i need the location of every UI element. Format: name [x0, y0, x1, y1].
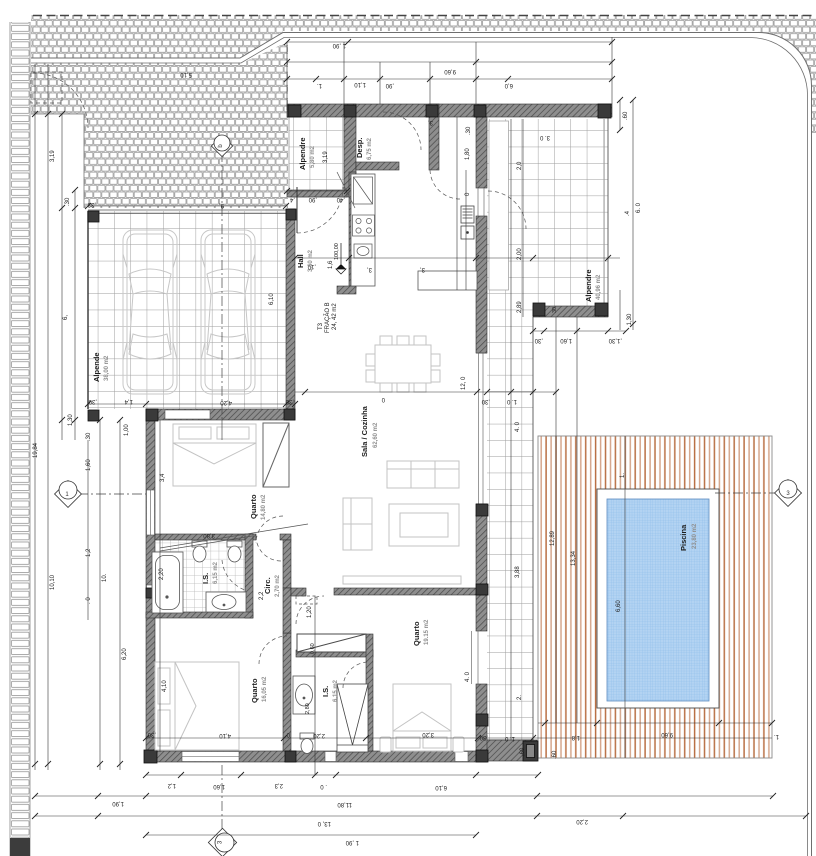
svg-text:6,15 m2: 6,15 m2: [333, 679, 339, 702]
svg-text:13,34: 13,34: [571, 550, 577, 566]
svg-text:6,20: 6,20: [122, 648, 128, 660]
svg-text:Circ.: Circ.: [263, 577, 272, 594]
svg-text:3,: 3,: [428, 119, 433, 125]
svg-text:. 0: . 0: [320, 783, 327, 789]
svg-text:100,00: 100,00: [334, 243, 340, 260]
svg-text:38,00 m2: 38,00 m2: [104, 355, 110, 381]
svg-text:FRAÇÃO B: FRAÇÃO B: [324, 302, 331, 333]
svg-text:1,2: 1,2: [167, 782, 176, 788]
svg-text:1,6: 1,6: [328, 260, 334, 269]
svg-text:.30: .30: [65, 197, 71, 206]
svg-text:Piscina: Piscina: [679, 524, 688, 551]
svg-text:1.: 1.: [774, 733, 779, 739]
svg-text:3,19: 3,19: [323, 151, 329, 163]
svg-text:6,10: 6,10: [269, 293, 275, 305]
svg-text:T3: T3: [318, 322, 324, 330]
svg-text:19,84: 19,84: [33, 442, 39, 458]
svg-text:5,10: 5,10: [180, 71, 192, 77]
svg-text:4,10: 4,10: [219, 732, 231, 738]
svg-text:,30: ,30: [479, 734, 488, 740]
svg-text:4,10: 4,10: [162, 680, 168, 692]
svg-text:Quarto: Quarto: [249, 494, 258, 519]
svg-text:12,89: 12,89: [550, 530, 556, 546]
svg-text:1. 0: 1. 0: [506, 398, 517, 404]
svg-text:Hall: Hall: [296, 254, 305, 268]
svg-text:6,10: 6,10: [435, 784, 447, 790]
svg-text:1,10: 1,10: [354, 81, 366, 87]
svg-text:Sala / Cozinha: Sala / Cozinha: [360, 405, 369, 457]
svg-text:.30: .30: [466, 126, 472, 135]
svg-text:3,60 m2: 3,60 m2: [308, 249, 314, 272]
svg-text:1. 0: 1. 0: [504, 735, 515, 741]
svg-text:14,80 m2: 14,80 m2: [261, 494, 267, 520]
svg-text:,90: ,90: [308, 196, 317, 202]
svg-text:1 ,90: 1 ,90: [332, 42, 346, 48]
svg-text:1,60: 1,60: [560, 337, 572, 343]
svg-text:3,88: 3,88: [515, 566, 521, 578]
svg-text:,30: ,30: [534, 337, 543, 343]
svg-text:1,60: 1,60: [86, 459, 92, 471]
svg-text:3. 0: 3. 0: [539, 134, 550, 140]
svg-text:6,: 6,: [63, 315, 69, 320]
svg-text:3,: 3,: [420, 266, 425, 272]
svg-text:,60: ,60: [520, 747, 526, 756]
svg-text:3,: 3,: [367, 266, 372, 272]
svg-text:3,19: 3,19: [50, 150, 56, 162]
svg-text:1 ,90: 1 ,90: [345, 839, 359, 845]
svg-text:6,75 m2: 6,75 m2: [367, 137, 373, 160]
svg-text:.60: .60: [623, 111, 629, 120]
svg-text:11,80: 11,80: [337, 801, 352, 807]
svg-text:2,20: 2,20: [576, 818, 588, 824]
svg-text:.60: .60: [552, 750, 558, 759]
svg-text:2,80: 2,80: [305, 703, 311, 714]
svg-text:10,10: 10,10: [50, 574, 56, 590]
svg-text:3,20: 3,20: [422, 731, 434, 737]
svg-text:6,0: 6,0: [504, 82, 513, 88]
svg-text:23,80 m2: 23,80 m2: [692, 523, 698, 549]
svg-text:24, 42 m2: 24, 42 m2: [332, 303, 338, 330]
svg-text:13, 0: 13, 0: [317, 820, 331, 826]
svg-text:Desp.: Desp.: [355, 138, 364, 158]
svg-text:0,60: 0,60: [310, 643, 316, 654]
svg-text:4,20: 4,20: [220, 399, 232, 405]
svg-text:6,60: 6,60: [616, 600, 622, 612]
svg-text:12, 0: 12, 0: [461, 376, 467, 390]
svg-text:Quarto: Quarto: [412, 621, 421, 646]
svg-text:. 0: . 0: [86, 597, 92, 604]
svg-text:2,89: 2,89: [517, 301, 523, 313]
svg-text:6,15 m2: 6,15 m2: [213, 561, 219, 584]
svg-text:6. 0: 6. 0: [636, 202, 642, 213]
svg-text:9,: 9,: [219, 202, 224, 208]
svg-text:2.: 2.: [517, 695, 523, 700]
svg-text:9,60: 9,60: [444, 68, 456, 74]
svg-text:,4: ,4: [289, 196, 295, 202]
svg-text:,30: ,30: [147, 731, 156, 737]
svg-text:3,4: 3,4: [160, 473, 166, 482]
svg-text:Alpendre: Alpendre: [584, 269, 593, 302]
svg-text:1,2: 1,2: [86, 548, 92, 557]
svg-text:1,4: 1,4: [124, 398, 133, 404]
svg-text:1,00: 1,00: [124, 424, 130, 436]
svg-text:Quarto: Quarto: [250, 678, 259, 703]
svg-text:1,30: 1,30: [68, 414, 74, 426]
svg-text:2,20: 2,20: [313, 732, 325, 738]
svg-text:1,80: 1,80: [465, 148, 471, 160]
svg-text:5,80 m2: 5,80 m2: [310, 145, 316, 168]
svg-text:1,20: 1,20: [307, 606, 313, 618]
svg-text:2,3: 2,3: [274, 782, 283, 788]
svg-text:2,0: 2,0: [517, 161, 523, 170]
svg-text:62,60 m2: 62,60 m2: [373, 422, 379, 448]
svg-text:,33: ,33: [87, 201, 96, 207]
svg-text:3,80: 3,80: [203, 532, 215, 538]
svg-text:9,60: 9,60: [661, 731, 673, 737]
svg-text:.4: .4: [625, 210, 631, 216]
svg-text:2,70 m2: 2,70 m2: [275, 574, 281, 597]
svg-text:,30: ,30: [285, 398, 294, 404]
svg-text:4. 0: 4. 0: [465, 671, 471, 682]
svg-text:,1,30: ,1,30: [608, 337, 622, 343]
svg-text:10.: 10.: [102, 573, 108, 582]
svg-text:Alpende: Alpende: [92, 352, 101, 382]
svg-text:,40: ,40: [336, 196, 345, 202]
svg-text:I.S.: I.S.: [321, 686, 330, 697]
svg-text:,30: ,30: [481, 398, 490, 404]
svg-text:4. 0: 4. 0: [515, 421, 521, 432]
svg-text:1.: 1.: [620, 473, 626, 478]
svg-text:30: 30: [552, 307, 558, 313]
svg-text:1,60: 1,60: [213, 783, 225, 789]
svg-text:.1,30: .1,30: [627, 313, 633, 327]
svg-text:40,96 m2: 40,96 m2: [596, 274, 602, 300]
svg-text:,90: ,90: [385, 82, 394, 88]
svg-text:,30: ,30: [88, 398, 97, 404]
svg-text:1,90: 1,90: [112, 800, 124, 806]
svg-text:.30: .30: [86, 432, 92, 441]
svg-text:1,8: 1,8: [571, 734, 580, 740]
svg-text:I.S.: I.S.: [201, 573, 210, 584]
svg-text:2,20: 2,20: [159, 568, 165, 580]
svg-text:2,00: 2,00: [517, 248, 523, 260]
svg-text:16,05 m2: 16,05 m2: [262, 676, 268, 702]
svg-text:1.: 1.: [317, 82, 322, 88]
svg-text:19.15 m2: 19.15 m2: [424, 619, 430, 645]
svg-text:Alpendre: Alpendre: [298, 137, 307, 170]
